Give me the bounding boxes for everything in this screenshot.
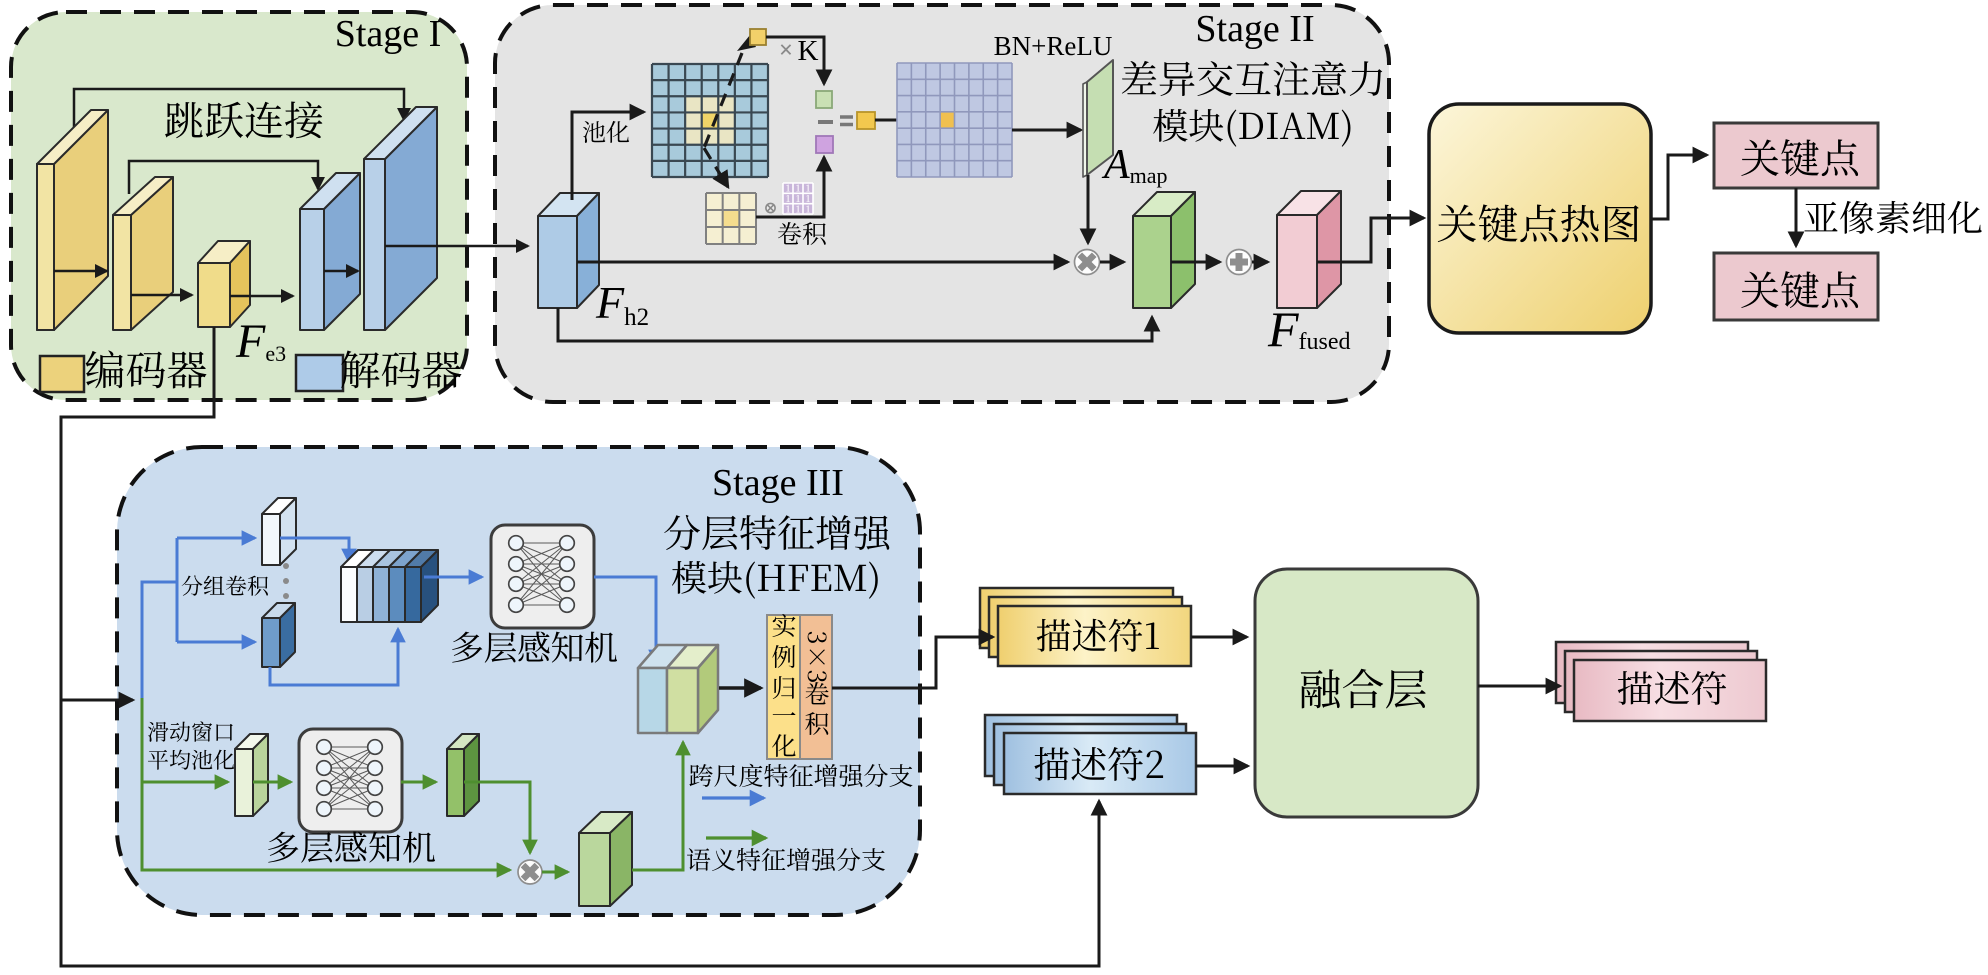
- svg-text:×: ×: [779, 37, 793, 64]
- svg-text:1: 1: [785, 203, 791, 215]
- svg-text:BN+ReLU: BN+ReLU: [994, 31, 1113, 61]
- svg-text:K: K: [798, 35, 819, 67]
- svg-text:Stage II: Stage II: [1195, 8, 1314, 50]
- svg-text:Stage I: Stage I: [335, 13, 442, 55]
- svg-text:1: 1: [795, 203, 801, 215]
- svg-text:Stage III: Stage III: [712, 462, 844, 504]
- svg-text:1: 1: [805, 203, 811, 215]
